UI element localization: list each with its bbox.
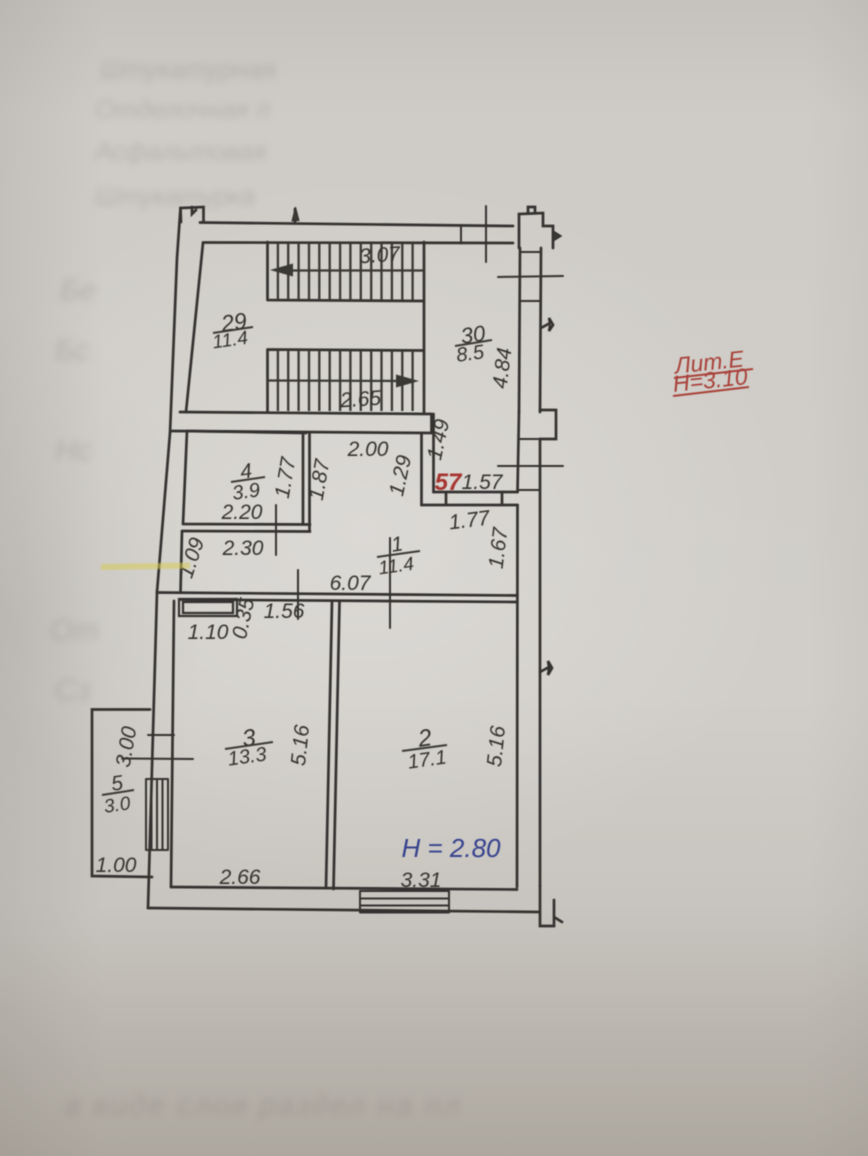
svg-text:Асфальтовая: Асфальтовая [93,136,267,166]
svg-text:Бс: Бс [55,334,90,367]
svg-text:3.31: 3.31 [401,869,442,892]
svg-text:5.16: 5.16 [287,723,314,766]
svg-text:2.30: 2.30 [222,537,264,560]
svg-text:5.16: 5.16 [483,724,510,767]
svg-text:Нс: Нс [55,434,92,467]
svg-text:Отделочная п: Отделочная п [95,94,270,124]
svg-text:4.84: 4.84 [489,347,517,390]
svg-text:1.57: 1.57 [462,471,504,494]
svg-text:3.07: 3.07 [358,243,402,269]
svg-text:Штукатурка: Штукатурка [95,181,255,211]
svg-text:3.0: 3.0 [103,793,133,818]
svg-text:Штукатурная: Штукатурная [100,54,276,84]
svg-text:2.00: 2.00 [347,438,389,461]
svg-text:Сз: Сз [55,674,91,707]
svg-text:в виде слоя раздел на пл: в виде слоя раздел на пл [65,1089,462,1122]
svg-text:Бе: Бе [60,274,96,307]
svg-text:2.20: 2.20 [221,501,263,524]
svg-text:От: От [50,614,98,647]
svg-text:3.00: 3.00 [112,724,142,769]
svg-text:2.66: 2.66 [219,866,261,889]
svg-text:1.29: 1.29 [385,453,416,498]
svg-text:1.77: 1.77 [271,454,301,500]
svg-text:2.65: 2.65 [338,387,382,413]
svg-text:6.07: 6.07 [330,572,372,595]
svg-text:1.77: 1.77 [448,506,493,534]
svg-text:1.56: 1.56 [264,600,305,623]
svg-text:1.09: 1.09 [175,535,210,581]
svg-text:57: 57 [435,469,463,496]
svg-text:1.67: 1.67 [485,525,513,570]
svg-text:1.00: 1.00 [96,854,137,877]
svg-text:11.4: 11.4 [377,554,415,580]
svg-text:H = 2.80: H = 2.80 [401,833,501,863]
svg-text:1.10: 1.10 [188,621,229,644]
svg-text:1.49: 1.49 [423,417,454,462]
